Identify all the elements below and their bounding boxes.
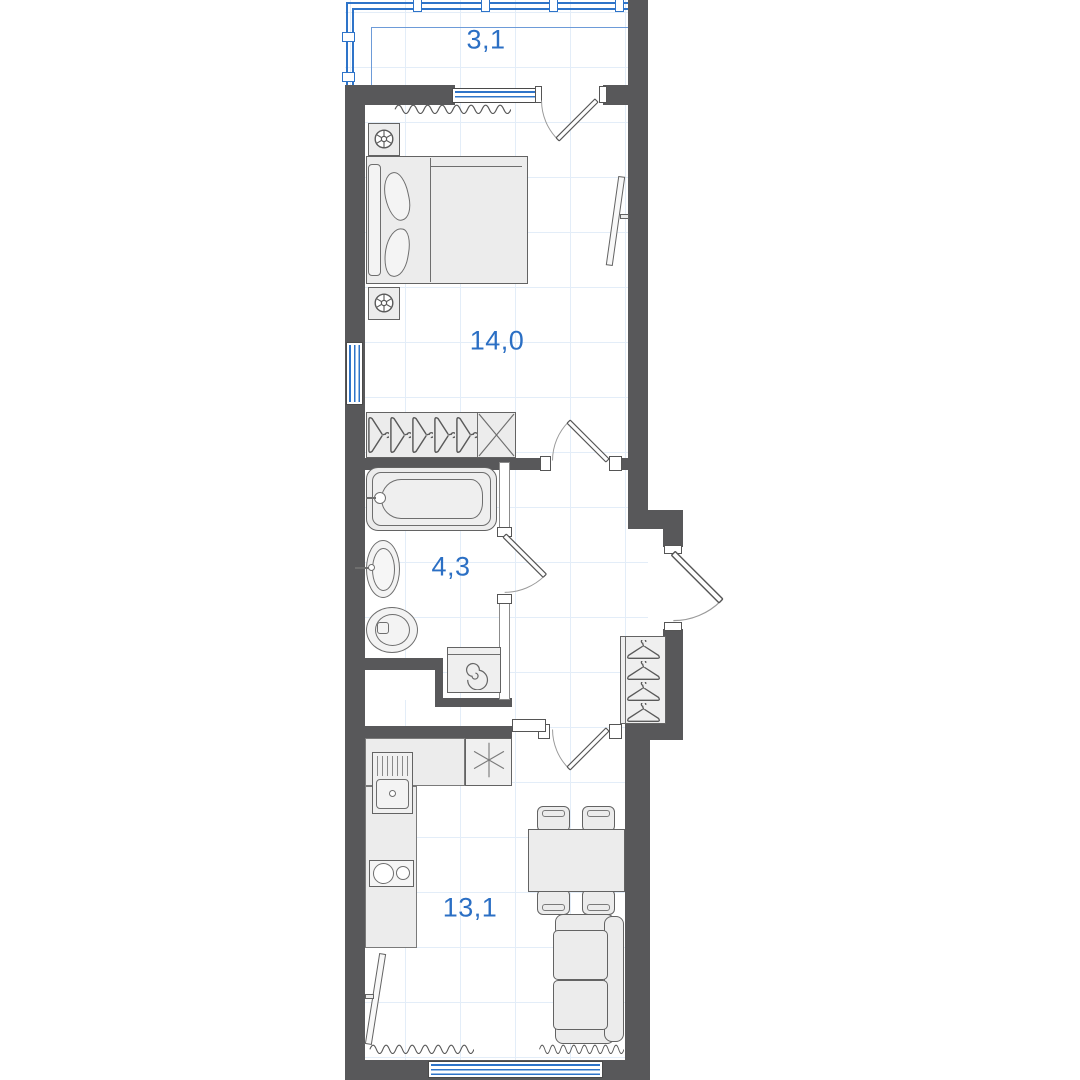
snowflake-icon — [470, 741, 508, 779]
sofa-seat — [553, 980, 608, 1030]
wall-segment — [499, 462, 510, 536]
floor-plan: 3,1 14,0 4,3 13,1 — [0, 0, 1080, 1080]
washbasin-bowl — [372, 548, 395, 591]
washbasin-tap-knob — [368, 564, 375, 571]
room-label-bathroom: 4,3 — [431, 552, 470, 583]
hanger-icon — [623, 682, 664, 702]
bathtub-basin — [381, 479, 483, 519]
sink-drainboard — [377, 756, 408, 776]
bathroom-door — [501, 532, 565, 596]
balcony-door — [538, 97, 600, 159]
wall-segment — [363, 726, 512, 738]
burner — [396, 866, 410, 880]
chair — [582, 889, 615, 915]
hanger-icon — [411, 415, 433, 455]
spiral-drum-icon — [458, 658, 490, 690]
bed-blanket-fold — [430, 166, 522, 167]
hanger-icon — [455, 415, 477, 455]
tv-mount — [365, 994, 374, 999]
entrance-door — [669, 549, 745, 625]
glazing-mullion — [342, 32, 355, 42]
hanger-icon — [367, 415, 389, 455]
glazing-mullion — [481, 0, 490, 12]
sink-drain — [389, 790, 396, 797]
wall-segment — [628, 510, 683, 529]
glazing-mullion — [615, 0, 624, 12]
wall-segment — [628, 0, 648, 510]
radiator-wave-icon — [393, 101, 511, 114]
wardrobe-cross-icon — [478, 413, 515, 457]
washing-machine-panel — [448, 654, 500, 655]
wall-segment — [363, 658, 443, 670]
wall-segment — [621, 458, 628, 470]
wall-segment — [345, 85, 365, 1080]
wall-end-cap — [512, 719, 546, 732]
room-label-kitchen: 13,1 — [443, 893, 498, 924]
shaft-void — [361, 668, 437, 700]
glazing-mullion — [413, 0, 422, 12]
hanger-icon — [623, 640, 664, 660]
hanger-icon — [623, 661, 664, 681]
wall-segment — [435, 670, 443, 698]
sofa-seat — [553, 930, 608, 980]
kitchen-door — [549, 726, 611, 788]
burner — [373, 863, 394, 884]
lamp-icon — [372, 291, 396, 315]
bed-headboard — [368, 164, 381, 276]
chair — [537, 889, 570, 915]
hanger-icon — [623, 703, 664, 723]
hanger-icon — [389, 415, 411, 455]
tv-mount — [620, 214, 629, 219]
radiator-wave-icon — [538, 1041, 624, 1054]
window-bedroom-left — [346, 342, 363, 405]
bedroom-door — [549, 402, 611, 464]
room-label-bedroom: 14,0 — [470, 326, 525, 357]
toilet-button — [377, 622, 389, 634]
dining-table — [528, 829, 625, 892]
room-label-balcony: 3,1 — [466, 25, 505, 56]
window-kitchen — [428, 1061, 603, 1078]
radiator-wave-icon — [368, 1041, 474, 1054]
bed-blanket-fold — [430, 158, 431, 282]
hanger-icon — [433, 415, 455, 455]
glazing-mullion — [342, 72, 355, 82]
bathtub-faucet-stub — [366, 497, 376, 499]
door-jamb — [599, 86, 607, 103]
lamp-icon — [372, 127, 396, 151]
wall-segment — [625, 740, 650, 1080]
glazing-mullion — [549, 0, 558, 12]
